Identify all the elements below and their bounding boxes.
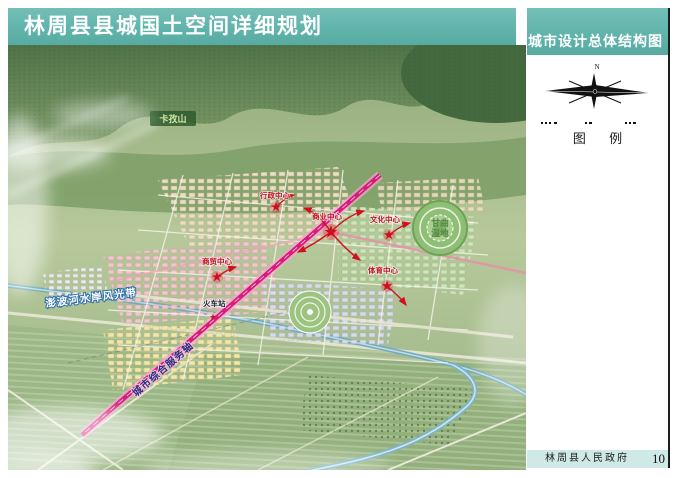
sidebar: 城市设计总体结构图 N	[527, 8, 668, 468]
map-illustration: 甘曲 湿地 卡孜山	[8, 45, 526, 470]
planning-sheet: 林周县县城国土空间详细规划	[0, 0, 676, 478]
center-label: 商业中心	[312, 211, 342, 221]
map-canvas: 甘曲 湿地 卡孜山	[8, 45, 526, 470]
legend-title: 图 例	[527, 128, 668, 147]
station-label: 火车站	[203, 298, 226, 308]
central-park	[289, 291, 331, 333]
footer-strip: 林周县人民政府 10	[527, 450, 668, 468]
wetland-label-line1: 甘曲	[431, 218, 448, 228]
title-banner: 林周县县城国土空间详细规划	[8, 8, 516, 45]
scale-bar	[537, 114, 657, 122]
wetland-label-line2: 湿地	[431, 228, 449, 238]
page-right-border	[668, 8, 670, 468]
center-label: 文化中心	[370, 214, 400, 224]
compass-north-label: N	[594, 63, 599, 71]
center-label: 体育中心	[368, 265, 398, 275]
wetland-park: 甘曲 湿地	[413, 201, 467, 255]
page-title: 林周县县城国土空间详细规划	[8, 8, 516, 45]
mountain-label: 卡孜山	[159, 113, 186, 124]
publisher-label: 林周县人民政府	[527, 450, 647, 468]
center-label: 行政中心	[259, 190, 290, 200]
mountain-badge: 卡孜山	[150, 111, 196, 126]
page-number: 10	[652, 450, 665, 468]
compass-icon: N	[537, 60, 657, 112]
map-title-banner: 城市设计总体结构图	[527, 8, 668, 55]
center-label: 商贸中心	[202, 256, 232, 266]
map-title: 城市设计总体结构图	[528, 31, 663, 51]
